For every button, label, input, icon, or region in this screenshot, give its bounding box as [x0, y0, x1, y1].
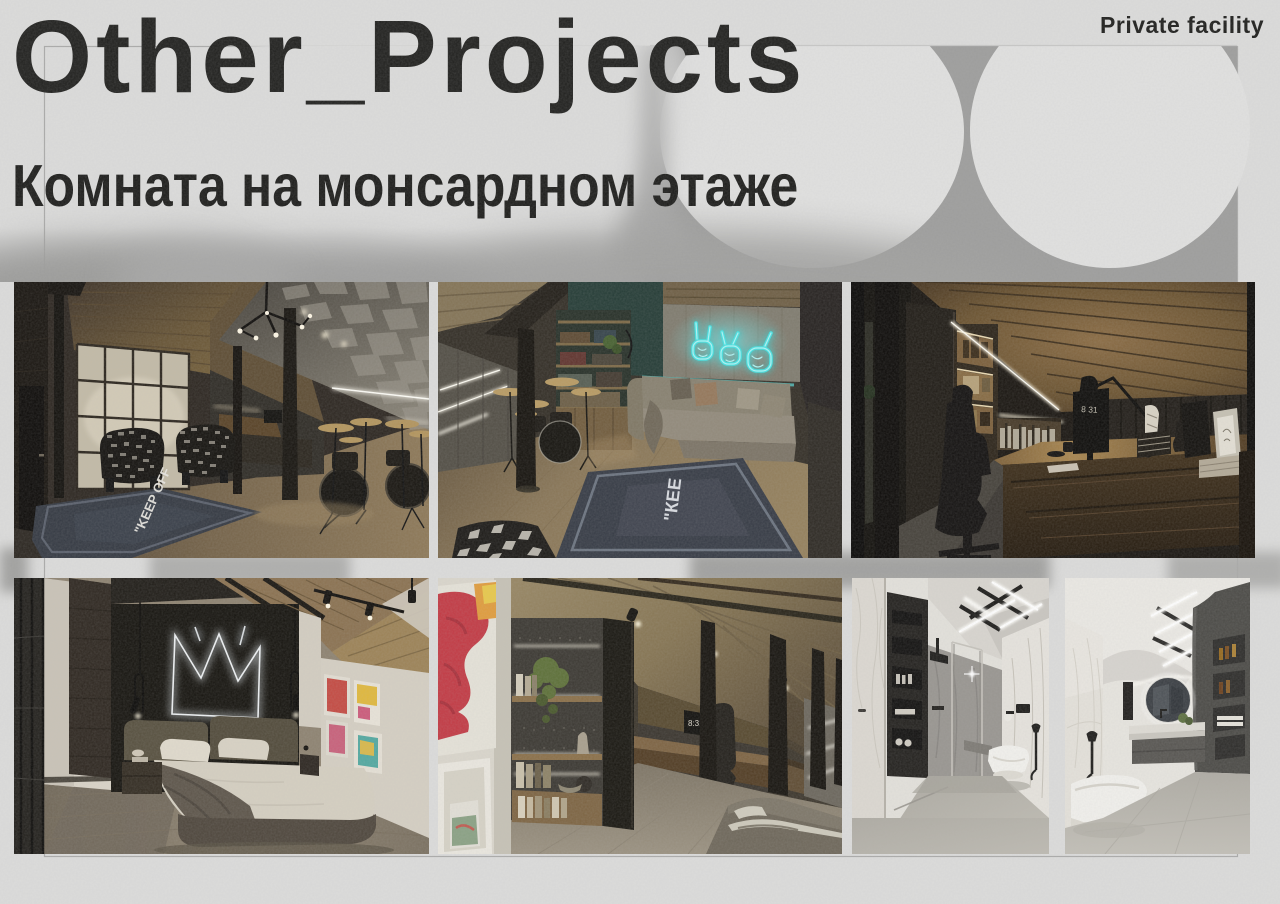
svg-text:8 31: 8 31: [1081, 404, 1098, 415]
